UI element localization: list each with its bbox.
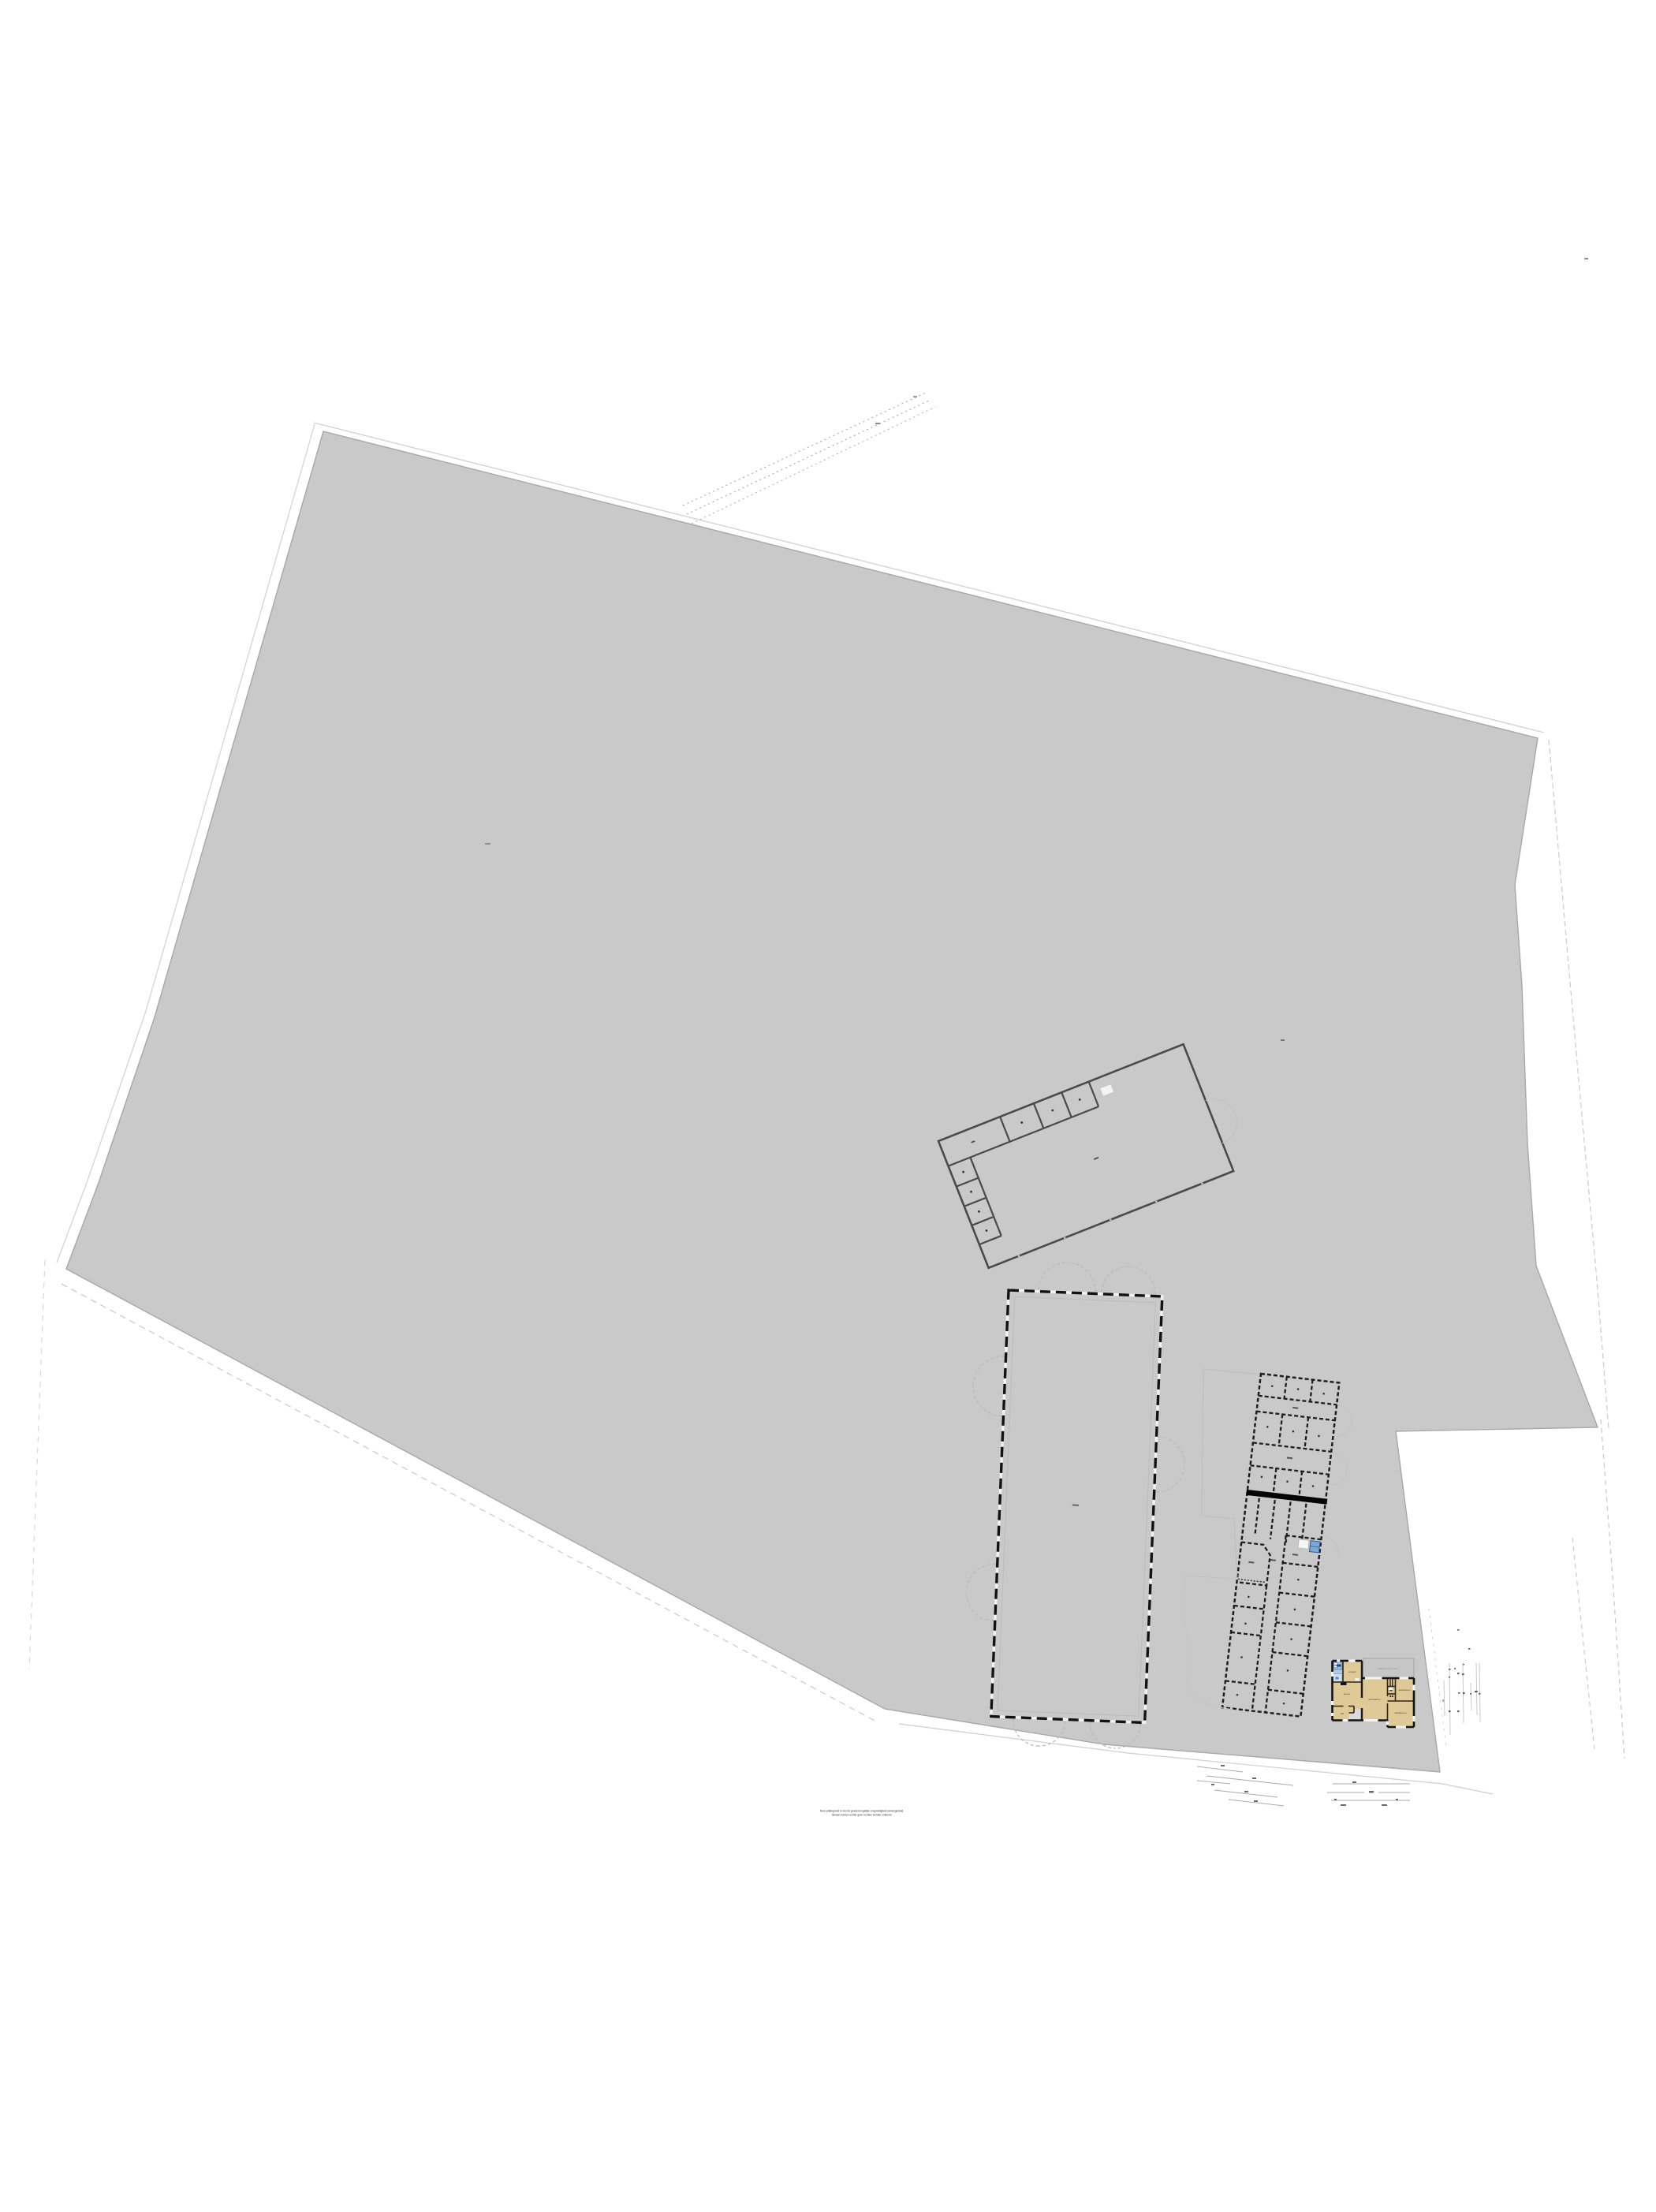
svg-text:slaapkamer: slaapkamer — [1394, 1711, 1407, 1714]
svg-text:Deze plattegrond is met de gro: Deze plattegrond is met de grootst mogel… — [820, 1810, 904, 1813]
svg-text:kamer: kamer — [1344, 1692, 1350, 1695]
svg-text:hal: hal — [1341, 1712, 1344, 1715]
svg-text:woonkamer: woonkamer — [1368, 1698, 1381, 1701]
svg-text:keuken: keuken — [1348, 1670, 1356, 1673]
svg-text:aanbouw 5,1 m²: aanbouw 5,1 m² — [1378, 1667, 1398, 1670]
svg-text:hieraan kunnen echter geen rec: hieraan kunnen echter geen rechten worde… — [832, 1814, 893, 1817]
svg-text:slaapkamer: slaapkamer — [1398, 1688, 1411, 1692]
